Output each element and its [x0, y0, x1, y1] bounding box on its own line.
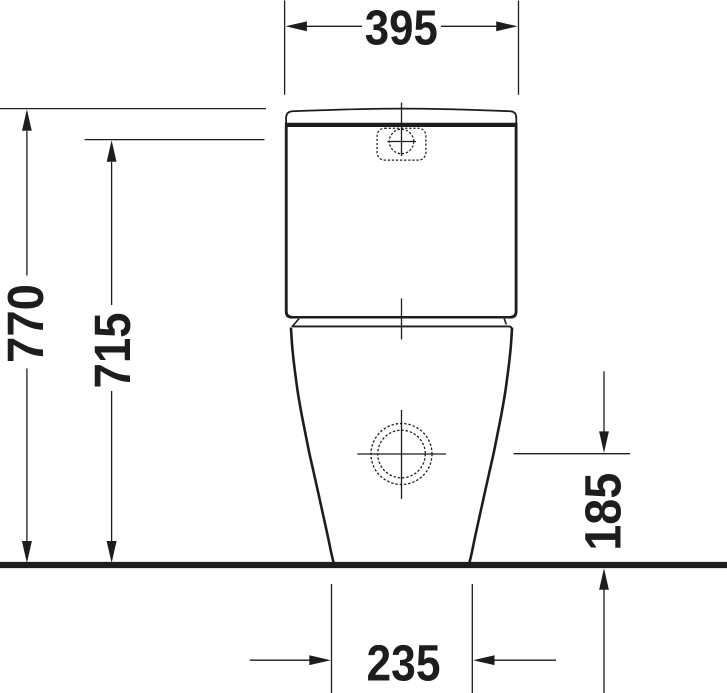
svg-text:770: 770 — [0, 284, 54, 363]
svg-text:715: 715 — [84, 313, 141, 389]
svg-text:235: 235 — [367, 634, 441, 691]
svg-text:395: 395 — [365, 1, 438, 56]
svg-text:185: 185 — [574, 473, 631, 551]
